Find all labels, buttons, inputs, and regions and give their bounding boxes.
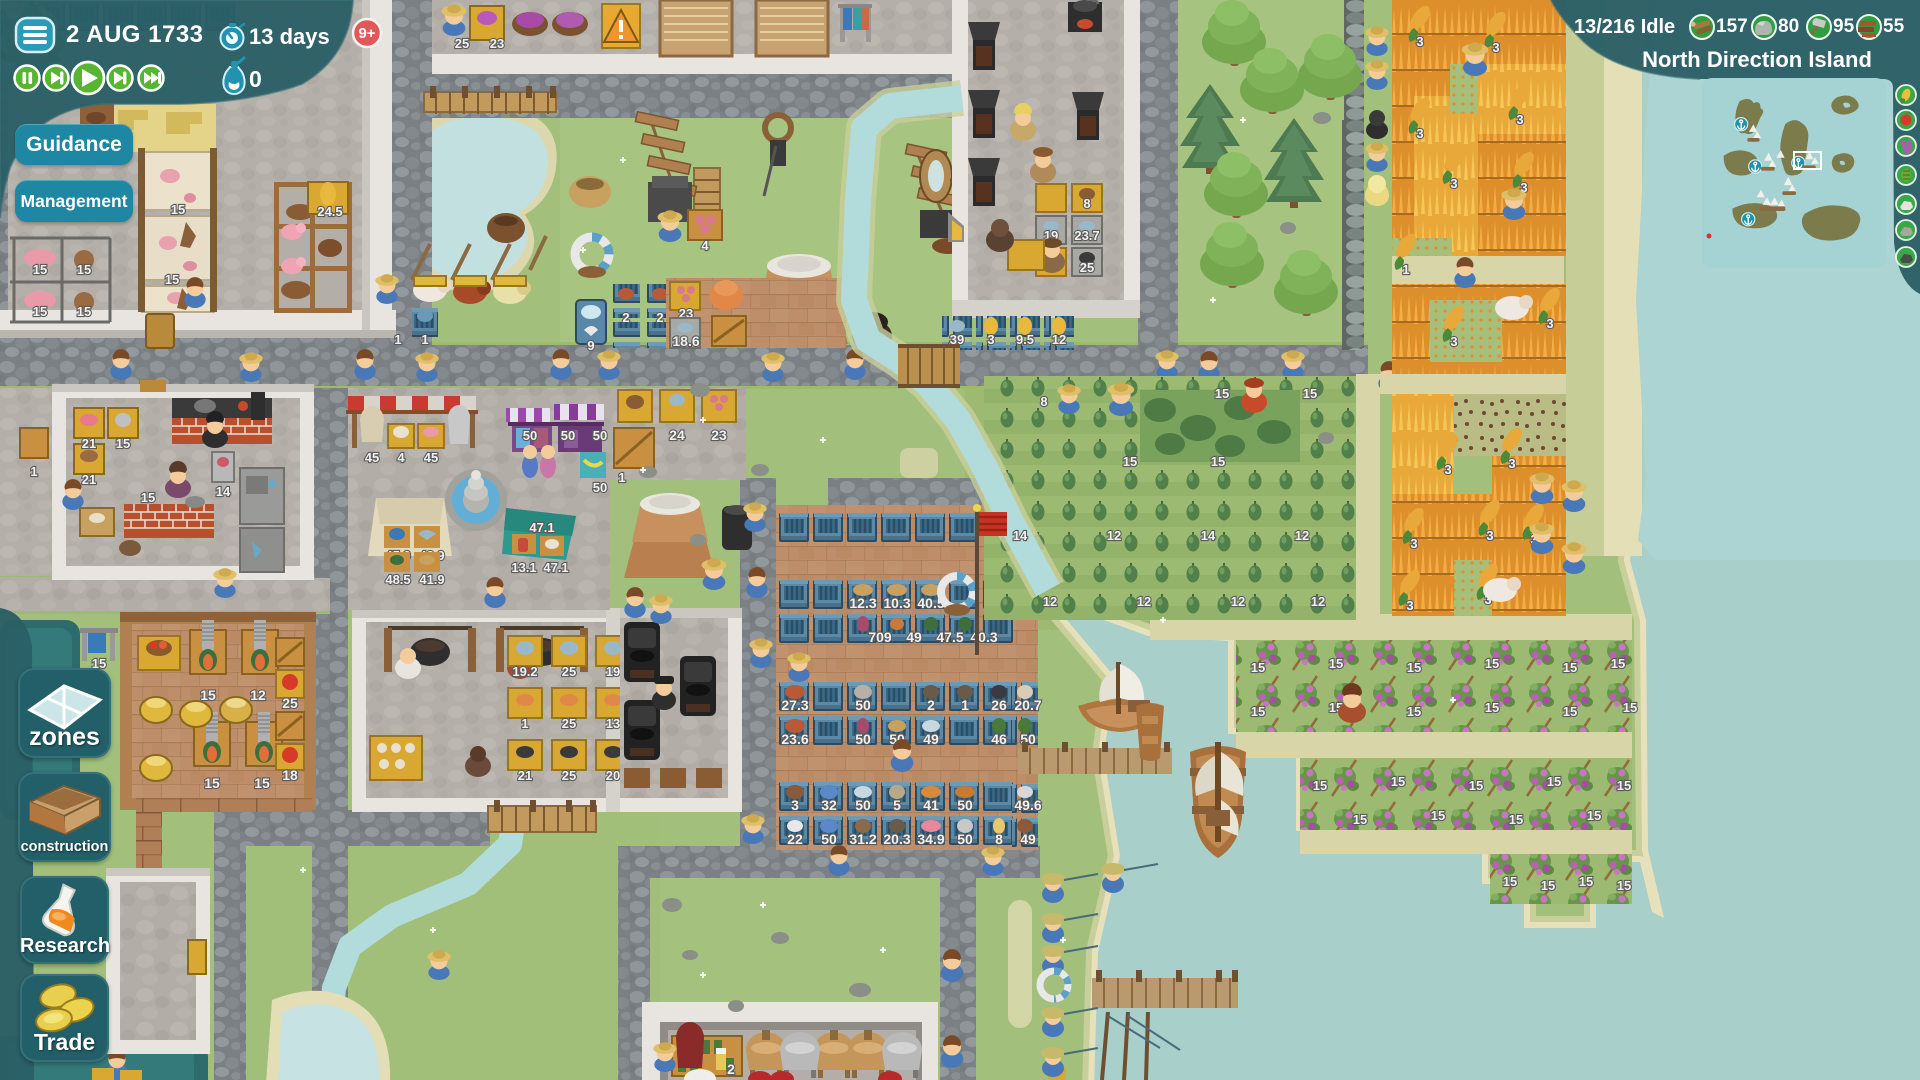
svg-text:15: 15 [1251,660,1265,675]
svg-text:15: 15 [77,262,91,277]
svg-text:15: 15 [1485,700,1499,715]
svg-text:12: 12 [1052,332,1066,347]
svg-text:15: 15 [1547,774,1561,789]
svg-text:50: 50 [855,697,871,713]
svg-text:2: 2 [927,697,935,713]
svg-text:23: 23 [711,427,727,443]
svg-text:34.9: 34.9 [917,831,944,847]
svg-text:14: 14 [216,484,231,499]
svg-text:15: 15 [1211,454,1225,469]
svg-text:12: 12 [1137,594,1151,609]
svg-text:27.3: 27.3 [781,697,808,713]
svg-text:15: 15 [1313,778,1327,793]
svg-text:10.3: 10.3 [883,595,910,611]
svg-text:15: 15 [200,687,216,703]
svg-text:15: 15 [1587,808,1601,823]
svg-text:1: 1 [521,716,528,731]
svg-text:15: 15 [1579,874,1593,889]
svg-text:15: 15 [1407,660,1421,675]
svg-text:15: 15 [1215,386,1229,401]
svg-text:45: 45 [424,450,438,465]
svg-text:25: 25 [455,36,469,51]
svg-text:15: 15 [1391,774,1405,789]
svg-text:12.3: 12.3 [849,595,876,611]
svg-text:41: 41 [923,797,939,813]
svg-text:49: 49 [1020,831,1036,847]
svg-text:50: 50 [957,831,973,847]
svg-text:49.6: 49.6 [1014,797,1041,813]
svg-text:18: 18 [282,767,298,783]
svg-text:15: 15 [77,304,91,319]
svg-text:12: 12 [250,687,266,703]
svg-text:47.1: 47.1 [543,560,568,575]
svg-text:48.5: 48.5 [385,572,410,587]
svg-text:4: 4 [397,450,405,465]
svg-text:50: 50 [593,480,607,495]
svg-text:15: 15 [1485,656,1499,671]
svg-text:50: 50 [593,428,607,443]
svg-text:3: 3 [1416,34,1423,49]
svg-text:3: 3 [1450,176,1457,191]
svg-text:15: 15 [33,304,47,319]
svg-text:15: 15 [1353,812,1367,827]
svg-text:40.3: 40.3 [970,629,997,645]
svg-text:3: 3 [1444,462,1451,477]
svg-text:50: 50 [523,428,537,443]
svg-text:12: 12 [1107,528,1121,543]
svg-text:15: 15 [1623,700,1637,715]
svg-text:3: 3 [1406,598,1413,613]
svg-text:15: 15 [1251,704,1265,719]
svg-text:4: 4 [701,238,709,253]
svg-text:8: 8 [1083,196,1090,211]
svg-text:9.5: 9.5 [1016,332,1034,347]
svg-text:50: 50 [821,831,837,847]
svg-text:32: 32 [821,797,837,813]
svg-text:24: 24 [669,427,685,443]
svg-text:3: 3 [791,797,799,813]
svg-text:50: 50 [561,428,575,443]
svg-text:3: 3 [1450,334,1457,349]
svg-text:26: 26 [991,697,1007,713]
svg-text:50: 50 [957,797,973,813]
svg-text:15: 15 [141,490,155,505]
svg-text:13: 13 [606,716,620,731]
svg-text:1: 1 [961,697,969,713]
svg-text:49: 49 [906,629,922,645]
svg-text:3: 3 [1486,528,1493,543]
svg-text:1: 1 [394,332,401,347]
svg-text:20.7: 20.7 [1014,697,1041,713]
svg-text:15: 15 [1617,878,1631,893]
svg-text:8: 8 [995,831,1003,847]
svg-text:12: 12 [1311,594,1325,609]
svg-text:3: 3 [1492,40,1499,55]
svg-text:12: 12 [1295,528,1309,543]
svg-text:21: 21 [82,472,96,487]
svg-text:15: 15 [1563,660,1577,675]
svg-text:14: 14 [1013,528,1028,543]
svg-text:9: 9 [587,338,594,353]
svg-text:19: 19 [606,664,620,679]
svg-text:18.6: 18.6 [672,333,699,349]
svg-text:3: 3 [1516,112,1523,127]
svg-text:15: 15 [116,436,130,451]
svg-text:15: 15 [1407,704,1421,719]
svg-text:47.5: 47.5 [936,629,963,645]
svg-text:1: 1 [421,332,428,347]
svg-text:21: 21 [82,436,96,451]
svg-text:22: 22 [787,831,803,847]
svg-text:13.1: 13.1 [511,560,536,575]
svg-text:12: 12 [1231,594,1245,609]
svg-text:15: 15 [1611,656,1625,671]
svg-text:15: 15 [1563,704,1577,719]
svg-text:25: 25 [562,768,576,783]
svg-text:8: 8 [1040,394,1047,409]
svg-text:15: 15 [254,775,270,791]
svg-text:47.1: 47.1 [529,520,554,535]
svg-text:41.9: 41.9 [419,572,444,587]
svg-text:19.2: 19.2 [512,664,537,679]
svg-text:15: 15 [165,272,179,287]
svg-text:2: 2 [727,1061,735,1077]
svg-text:3: 3 [987,332,994,347]
svg-text:21: 21 [518,768,532,783]
svg-text:15: 15 [1431,808,1445,823]
svg-text:3: 3 [1546,316,1553,331]
svg-text:1: 1 [30,464,37,479]
svg-text:24.5: 24.5 [317,204,342,219]
svg-text:49: 49 [923,731,939,747]
svg-text:1: 1 [1402,262,1409,277]
svg-text:20.3: 20.3 [883,831,910,847]
svg-text:3: 3 [1410,536,1417,551]
svg-text:31.2: 31.2 [849,831,876,847]
svg-text:15: 15 [1303,386,1317,401]
svg-text:23: 23 [490,36,504,51]
svg-text:23.7: 23.7 [1074,228,1099,243]
svg-text:45: 45 [365,450,379,465]
svg-text:3: 3 [1416,126,1423,141]
svg-text:12: 12 [1043,594,1057,609]
svg-text:15: 15 [1617,778,1631,793]
svg-text:1: 1 [618,470,625,485]
svg-text:14: 14 [1201,528,1216,543]
svg-text:15: 15 [1509,812,1523,827]
svg-text:15: 15 [1541,878,1555,893]
svg-text:25: 25 [562,664,576,679]
svg-text:15: 15 [204,775,220,791]
svg-text:20: 20 [606,768,620,783]
svg-text:25: 25 [1080,260,1094,275]
svg-text:23.6: 23.6 [781,731,808,747]
svg-text:15: 15 [33,262,47,277]
svg-text:709: 709 [868,629,892,645]
svg-text:15: 15 [1329,656,1343,671]
svg-text:3: 3 [1508,456,1515,471]
svg-text:46: 46 [991,731,1007,747]
svg-text:50: 50 [855,797,871,813]
svg-text:15: 15 [1123,454,1137,469]
svg-text:50: 50 [855,731,871,747]
svg-text:25: 25 [562,716,576,731]
svg-text:25: 25 [282,695,298,711]
svg-text:15: 15 [171,202,185,217]
svg-text:5: 5 [893,797,901,813]
svg-text:15: 15 [1503,874,1517,889]
svg-text:15: 15 [1469,778,1483,793]
